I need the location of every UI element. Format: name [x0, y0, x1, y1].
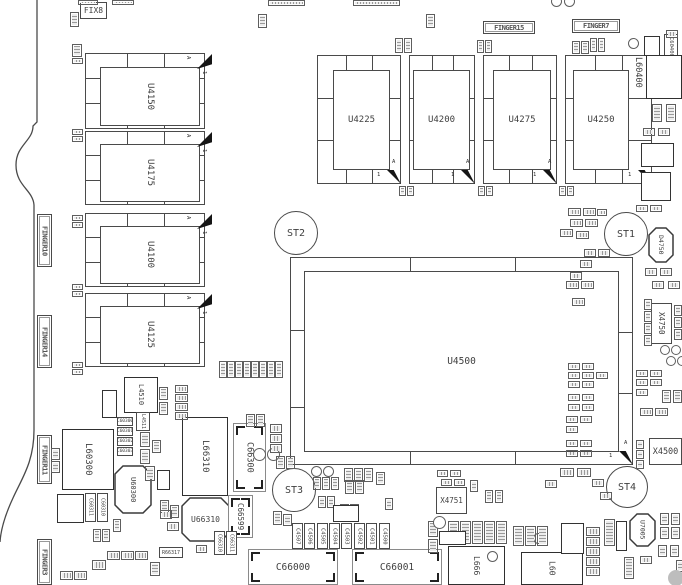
ic-pad-tick — [85, 342, 100, 343]
small-part — [273, 511, 282, 525]
small-part — [660, 268, 672, 276]
pin1-label-1: 1 — [533, 172, 539, 178]
refdes-c66599: C66599 — [236, 503, 245, 530]
small-part — [439, 531, 466, 545]
refdes-c4504: C4504 — [332, 528, 338, 545]
small-part — [331, 477, 339, 490]
ic-u4175-body: U4175 — [100, 144, 200, 202]
refdes-c66001: C66001 — [380, 562, 414, 573]
small-part — [323, 466, 334, 477]
small-part — [628, 38, 639, 49]
small-part — [568, 394, 580, 401]
ic-pad-tick — [164, 53, 165, 67]
refdes-c66311: C66311 — [229, 534, 235, 552]
ic-pad-tick — [565, 98, 573, 99]
component-c4507: C4507 — [292, 523, 303, 549]
small-part — [644, 335, 652, 346]
ic-pad-tick — [85, 180, 100, 181]
component-c4506: C4506 — [304, 523, 315, 549]
pin1-label-a: A — [185, 296, 191, 302]
ic-pad-tick — [127, 213, 128, 226]
ic-refdes-u4275: U4275 — [508, 115, 535, 125]
small-part — [150, 562, 160, 576]
small-part — [537, 526, 548, 546]
small-part — [660, 513, 669, 525]
ic-pad-tick — [317, 98, 333, 99]
ic-pad-tick — [390, 140, 401, 141]
small-part — [586, 537, 600, 546]
small-part — [559, 186, 566, 196]
testpoint-label-st3: ST3 — [285, 485, 303, 496]
ic-pad-tick — [164, 202, 165, 205]
small-part — [275, 361, 283, 378]
component-c60303: C60303 — [117, 447, 133, 456]
small-part — [160, 510, 172, 519]
small-part — [159, 387, 168, 400]
pin1-label-1: 1 — [201, 311, 207, 317]
small-part — [644, 36, 660, 56]
ic-pad-tick — [390, 98, 401, 99]
small-part — [496, 521, 507, 544]
ic-pad-tick — [127, 293, 128, 306]
small-part — [433, 516, 446, 529]
component-l4511: L4511 — [136, 412, 150, 431]
small-part — [636, 370, 648, 377]
pin1-label-1: 1 — [609, 453, 615, 459]
small-part — [644, 311, 652, 322]
small-part — [674, 329, 682, 340]
small-part — [175, 412, 188, 420]
ic-pad-tick — [290, 407, 304, 408]
ic-pad-tick — [127, 131, 128, 144]
small-part — [107, 551, 120, 560]
small-part — [641, 172, 671, 201]
component-x4500: X4500 — [649, 438, 682, 465]
ic-pad-tick — [200, 103, 205, 104]
small-part — [650, 379, 662, 386]
ic-pad-tick — [85, 78, 100, 79]
small-part — [666, 104, 676, 122]
small-part — [270, 444, 282, 453]
small-part — [140, 432, 150, 447]
ic-pad-tick — [483, 98, 493, 99]
pcb-assembly-drawing: U4150A1U4175A1U4100A1U4125A1U4225A1U4200… — [0, 0, 682, 585]
small-part — [395, 38, 403, 53]
small-part — [577, 468, 591, 477]
testpoint-st2: ST2 — [274, 211, 318, 255]
small-part — [576, 231, 589, 239]
small-part — [568, 404, 580, 411]
refdes-l60: L60 — [548, 561, 557, 575]
ic-u4275-body: U4275 — [493, 70, 551, 170]
small-part — [74, 571, 87, 580]
small-part — [650, 205, 662, 212]
component-x4750: X4750 — [651, 303, 672, 344]
small-part — [113, 519, 121, 532]
pin1-label-a: A — [466, 159, 472, 165]
refdes-l4511: L4511 — [140, 414, 146, 429]
small-part — [604, 519, 615, 546]
ic-pad-tick — [372, 55, 373, 70]
refdes-c4501: C4501 — [369, 528, 375, 545]
small-part — [645, 268, 657, 276]
small-part — [72, 44, 82, 57]
small-part — [313, 477, 321, 490]
small-part — [582, 381, 594, 388]
finger-label-text: FINGER3 — [41, 549, 49, 575]
component-c60310: C60310 — [97, 493, 108, 522]
finger-label-text: FINGER10 — [41, 226, 49, 256]
finger-label-text: FINGER15 — [494, 24, 524, 32]
small-part — [175, 385, 188, 393]
small-part — [157, 470, 170, 490]
pin1-label-a: A — [548, 159, 554, 165]
refdes-c60302: C60302 — [117, 439, 133, 444]
component-c66311: C66311 — [226, 531, 237, 555]
ic-pad-tick — [509, 170, 510, 184]
small-part — [561, 523, 584, 554]
ic-refdes-u4150: U4150 — [145, 83, 155, 110]
small-part — [658, 545, 667, 557]
ic-pad-tick — [85, 317, 100, 318]
small-part — [256, 414, 265, 427]
component-l60400-body — [646, 55, 682, 99]
ic-pad-tick — [372, 170, 373, 184]
small-part — [582, 363, 594, 370]
ic-pad-tick — [622, 170, 623, 184]
ic-pad-tick — [432, 170, 433, 184]
small-part — [652, 281, 664, 289]
ic-pad-tick — [85, 262, 100, 263]
small-part — [650, 370, 662, 377]
small-part — [597, 209, 607, 216]
small-part — [660, 527, 669, 539]
ic-pad-tick — [483, 140, 493, 141]
ic-pad-tick — [410, 257, 411, 271]
small-part — [636, 460, 644, 469]
small-part — [674, 305, 682, 316]
small-part — [624, 557, 634, 579]
refdes-c66000: C66000 — [276, 562, 310, 573]
small-part — [72, 58, 83, 64]
refdes-u66310: U66310 — [191, 515, 220, 524]
refdes-x4750: X4750 — [657, 312, 666, 335]
finger-label-text: FINGER7 — [583, 22, 609, 30]
ic-pad-tick — [619, 332, 633, 333]
ic-pad-tick — [515, 257, 516, 271]
refdes-c4503: C4503 — [344, 528, 350, 545]
component-c60300: C60300 — [117, 417, 133, 426]
small-part — [487, 551, 498, 562]
testpoint-label-st1: ST1 — [617, 229, 635, 240]
small-part — [658, 128, 670, 136]
pin1-label-a: A — [392, 159, 398, 165]
component-c66310: C66310 — [214, 531, 225, 555]
small-part — [572, 41, 580, 54]
finger-label-text: FINGER14 — [41, 327, 49, 357]
component-c60301: C60301 — [117, 427, 133, 436]
small-part — [426, 14, 435, 28]
ic-pad-tick — [551, 98, 557, 99]
small-part — [641, 143, 674, 167]
finger-label-finger11: FINGER11 — [37, 435, 52, 484]
small-part — [441, 479, 452, 486]
small-part — [355, 480, 364, 494]
ic-pad-tick — [85, 155, 100, 156]
finger-label-finger7: FINGER7 — [572, 19, 620, 33]
ic-pad-tick — [432, 55, 433, 70]
small-part — [567, 186, 574, 196]
small-part — [318, 496, 326, 508]
small-part — [566, 450, 578, 457]
small-part — [570, 219, 583, 227]
small-part — [581, 41, 589, 54]
small-part — [152, 440, 161, 453]
small-part — [566, 426, 578, 433]
ic-refdes-u4500: U4500 — [447, 356, 476, 367]
small-part — [477, 40, 484, 53]
ic-pad-tick — [409, 98, 413, 99]
small-part — [636, 205, 648, 212]
finger-label-finger15: FINGER15 — [483, 21, 535, 34]
small-part — [513, 526, 524, 546]
refdes-x4751: X4751 — [440, 496, 463, 505]
finger-label-finger10: FINGER10 — [37, 214, 52, 267]
small-part — [640, 556, 652, 564]
small-part — [484, 521, 495, 544]
small-part — [485, 490, 493, 503]
small-part — [286, 456, 295, 469]
component-d4750: D4750 — [648, 227, 674, 263]
small-part — [470, 480, 478, 492]
pin1-label-1: 1 — [628, 172, 634, 178]
ic-pad-tick — [317, 140, 333, 141]
ic-pad-tick — [127, 202, 128, 205]
small-part — [590, 38, 597, 52]
small-part — [580, 450, 592, 457]
small-part — [72, 222, 83, 228]
ic-pad-tick — [622, 55, 623, 70]
small-part — [495, 490, 503, 503]
small-part — [167, 522, 179, 531]
ic-pad-tick — [164, 293, 165, 306]
small-part — [246, 414, 255, 427]
ic-pad-tick — [200, 262, 205, 263]
finger-label-finger3: FINGER3 — [37, 539, 52, 585]
ic-u4250-body: U4250 — [573, 70, 629, 170]
component-c4503: C4503 — [341, 523, 352, 549]
small-part — [636, 389, 648, 396]
refdes-c60300: C60300 — [117, 419, 133, 424]
refdes-l66310: L66310 — [200, 440, 210, 473]
refdes-c60310: C60310 — [100, 498, 106, 516]
small-part — [572, 298, 585, 306]
component-c4504: C4504 — [329, 523, 340, 549]
small-part — [72, 136, 83, 142]
ic-pad-tick — [629, 140, 652, 141]
ic-pad-tick — [164, 213, 165, 226]
ic-refdes-u4125: U4125 — [145, 321, 155, 348]
small-part — [259, 361, 267, 378]
ic-pad-tick — [127, 53, 128, 67]
small-part — [673, 390, 682, 403]
refdes-l4510: L4510 — [137, 384, 145, 405]
refdes-c66310: C66310 — [217, 534, 223, 552]
refdes-l60400: L60400 — [633, 57, 643, 88]
ic-pad-tick — [409, 140, 413, 141]
pin1-label-a: A — [185, 216, 191, 222]
small-part — [311, 466, 322, 477]
component-l66310: L66310 — [182, 417, 228, 496]
ic-pad-tick — [532, 55, 533, 70]
small-part — [598, 249, 610, 257]
component-l4510: L4510 — [124, 377, 158, 413]
small-part — [582, 394, 594, 401]
small-part — [450, 470, 461, 477]
small-part — [674, 317, 682, 328]
small-part — [568, 363, 580, 370]
ic-refdes-u4175: U4175 — [145, 159, 155, 186]
component-c4500: C4500 — [379, 523, 390, 549]
finger-label-finger14: FINGER14 — [37, 315, 52, 368]
small-part — [135, 551, 148, 560]
small-part — [586, 527, 600, 536]
small-part — [644, 323, 652, 334]
refdes-c4506: C4506 — [307, 528, 313, 545]
small-part — [660, 345, 670, 355]
component-c4501: C4501 — [366, 523, 377, 549]
ic-u4150-body: U4150 — [100, 67, 200, 126]
pin1-label-1: 1 — [451, 172, 457, 178]
refdes-c4500: C4500 — [382, 528, 388, 545]
ic-pad-tick — [509, 55, 510, 70]
ic-pad-tick — [200, 317, 205, 318]
ic-pad-tick — [127, 364, 128, 367]
small-part — [596, 372, 608, 379]
component-c66001: C66001 — [352, 549, 442, 585]
ic-u4125-body: U4125 — [100, 306, 200, 364]
small-part — [566, 440, 578, 447]
small-part — [580, 416, 592, 423]
ic-pad-tick — [515, 452, 516, 465]
small-part — [376, 472, 385, 485]
small-part — [636, 440, 644, 449]
ic-pad-tick — [565, 140, 573, 141]
small-part — [72, 215, 83, 221]
pin1-label-a: A — [185, 56, 191, 62]
small-part — [385, 498, 393, 510]
small-part — [70, 12, 79, 27]
testpoint-label-st4: ST4 — [618, 482, 636, 493]
refdes-x4500: X4500 — [653, 447, 679, 457]
small-part — [636, 379, 648, 386]
small-part — [580, 260, 592, 268]
small-part — [145, 466, 155, 481]
refdes-c60400: C60400 — [668, 37, 674, 57]
ic-pad-tick — [200, 237, 205, 238]
ic-pad-tick — [619, 393, 633, 394]
testpoint-st4: ST4 — [606, 466, 648, 508]
small-part — [616, 521, 627, 551]
small-part — [636, 450, 644, 459]
small-part — [582, 372, 594, 379]
small-part — [568, 208, 581, 216]
small-part — [92, 560, 106, 570]
small-part — [270, 424, 282, 433]
small-part — [640, 408, 653, 416]
small-part — [677, 356, 682, 366]
small-part — [235, 361, 243, 378]
ic-pad-tick — [410, 452, 411, 465]
refdes-c4507: C4507 — [295, 528, 301, 545]
small-part — [478, 186, 485, 196]
small-part — [437, 470, 448, 477]
small-part — [560, 468, 574, 477]
finger-label-text: FINGER11 — [41, 445, 49, 475]
small-part — [51, 448, 60, 460]
small-part — [568, 372, 580, 379]
ic-pad-tick — [200, 180, 205, 181]
small-part — [666, 30, 678, 38]
small-part — [566, 416, 578, 423]
component-l60400: L60400 — [633, 55, 682, 99]
small-part — [72, 291, 83, 297]
small-part — [51, 461, 60, 473]
ic-u4200-body: U4200 — [413, 70, 470, 170]
small-part — [643, 128, 655, 136]
small-part — [322, 477, 330, 490]
small-part — [671, 527, 680, 539]
small-part — [586, 557, 600, 566]
small-part — [644, 299, 652, 310]
ic-refdes-u4200: U4200 — [428, 115, 455, 125]
small-part — [404, 38, 412, 53]
ic-u4225-body: U4225 — [333, 70, 390, 170]
component-c4502: C4502 — [354, 523, 365, 549]
small-part — [267, 361, 275, 378]
ic-pad-tick — [453, 55, 454, 70]
small-part — [586, 547, 600, 556]
testpoint-label-st2: ST2 — [287, 228, 305, 239]
small-part — [568, 381, 580, 388]
refdes-l60300: L60300 — [83, 443, 93, 476]
component-l60300: L60300 — [62, 429, 114, 490]
pin1-label-1: 1 — [377, 172, 383, 178]
small-part — [666, 356, 676, 366]
component-c60311: C60311 — [85, 493, 96, 522]
ic-pad-tick — [470, 98, 475, 99]
small-part — [227, 361, 235, 378]
small-part — [345, 480, 354, 494]
small-part — [102, 529, 110, 542]
ic-pad-tick — [164, 364, 165, 367]
ic-refdes-u4100: U4100 — [145, 241, 155, 268]
small-part — [112, 0, 134, 5]
small-part — [582, 404, 594, 411]
component-l60: L60 — [521, 552, 583, 585]
small-part — [671, 345, 681, 355]
small-part — [652, 104, 662, 122]
testpoint-st3: ST3 — [272, 468, 316, 512]
refdes-c4505: C4505 — [320, 528, 326, 545]
component-c66000: C66000 — [248, 549, 338, 585]
ic-pad-tick — [290, 330, 304, 331]
refdes-r66317: R66317 — [162, 550, 180, 556]
small-part — [585, 219, 598, 227]
small-part — [428, 539, 438, 553]
small-part — [584, 249, 596, 257]
small-part — [600, 492, 612, 500]
